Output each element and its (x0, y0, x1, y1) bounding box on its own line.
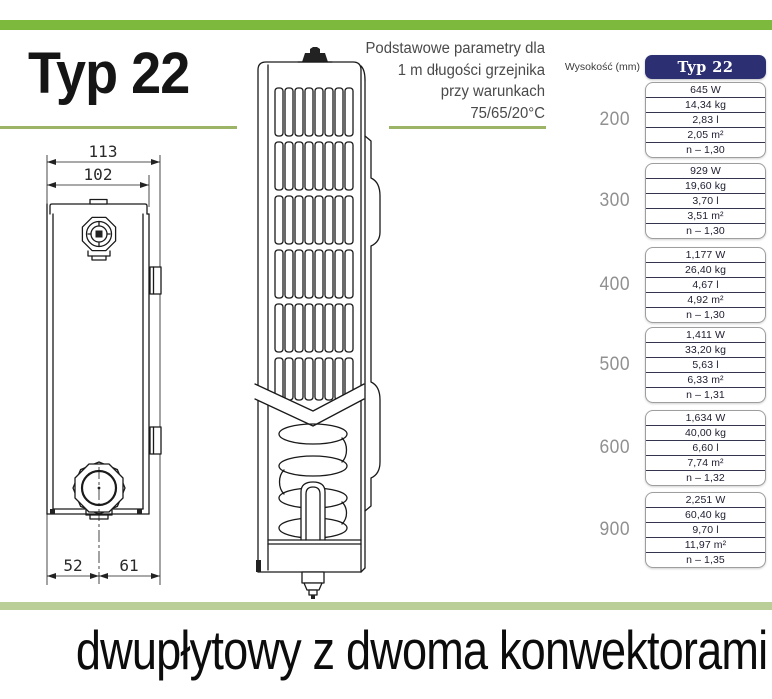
dim-bottom-right-label: 61 (119, 556, 138, 575)
cell-weight: 33,20 kg (646, 342, 765, 357)
cell-volume: 9,70 l (646, 522, 765, 537)
cell-exponent: n – 1,32 (646, 470, 765, 485)
cell-volume: 5,63 l (646, 357, 765, 372)
cell-volume: 4,67 l (646, 277, 765, 292)
wall-bracket-profile (365, 136, 380, 511)
cell-area: 2,05 m² (646, 127, 765, 142)
cell-exponent: n – 1,31 (646, 387, 765, 402)
cell-exponent: n – 1,30 (646, 142, 765, 157)
cell-volume: 3,70 l (646, 193, 765, 208)
height-label-200: 200 (562, 109, 630, 131)
table-group-400: 1,177 W 26,40 kg 4,67 l 4,92 m² n – 1,30 (645, 247, 766, 323)
cell-power: 1,634 W (646, 411, 765, 425)
front-grille (275, 88, 353, 400)
table-group-200: 645 W 14,34 kg 2,83 l 2,05 m² n – 1,30 (645, 82, 766, 158)
cell-area: 4,92 m² (646, 292, 765, 307)
drain-valve-icon (302, 572, 324, 599)
cell-power: 2,251 W (646, 493, 765, 507)
table-heading: Wysokość (mm) (558, 61, 640, 73)
section-break (255, 384, 364, 426)
bottom-green-band (0, 602, 772, 610)
air-vent-icon (298, 47, 332, 62)
cell-weight: 14,34 kg (646, 97, 765, 112)
cell-weight: 26,40 kg (646, 262, 765, 277)
table-group-600: 1,634 W 40,00 kg 6,60 l 7,74 m² n – 1,32 (645, 410, 766, 486)
top-valve-icon (82, 217, 115, 260)
table-group-900: 2,251 W 60,40 kg 9,70 l 11,97 m² n – 1,3… (645, 492, 766, 568)
footer-caption-wrap: dwupłytowy z dwoma konwektorami (0, 618, 772, 682)
spec-sheet: Typ 22 Podstawowe parametry dla 1 m dług… (0, 0, 772, 699)
top-green-bar (0, 20, 772, 30)
cell-weight: 40,00 kg (646, 425, 765, 440)
cell-exponent: n – 1,30 (646, 307, 765, 322)
page-title: Typ 22 (28, 40, 189, 107)
cell-volume: 2,83 l (646, 112, 765, 127)
table-group-300: 929 W 19,60 kg 3,70 l 3,51 m² n – 1,30 (645, 163, 766, 239)
radiator-side-section-drawing: 113 102 (30, 142, 180, 592)
cell-power: 929 W (646, 164, 765, 178)
title-underline (0, 126, 237, 129)
cell-weight: 60,40 kg (646, 507, 765, 522)
cell-exponent: n – 1,30 (646, 223, 765, 238)
cell-weight: 19,60 kg (646, 178, 765, 193)
height-label-500: 500 (562, 354, 630, 376)
cell-power: 645 W (646, 83, 765, 97)
radiator-front-cutaway-drawing (252, 40, 382, 600)
convector-fins (268, 424, 361, 544)
height-label-600: 600 (562, 437, 630, 459)
cell-volume: 6,60 l (646, 440, 765, 455)
type-badge: Typ 22 (645, 55, 766, 79)
dim-inner-width-label: 102 (84, 165, 113, 184)
cell-power: 1,411 W (646, 328, 765, 342)
dim-total-width-label: 113 (89, 142, 118, 161)
height-label-900: 900 (562, 519, 630, 541)
cell-area: 11,97 m² (646, 537, 765, 552)
height-label-300: 300 (562, 190, 630, 212)
footer-caption: dwupłytowy z dwoma konwektorami (76, 618, 767, 682)
dim-bottom-left-label: 52 (63, 556, 82, 575)
wall-bracket-icon (150, 267, 161, 454)
cell-area: 3,51 m² (646, 208, 765, 223)
cell-area: 6,33 m² (646, 372, 765, 387)
note-underline (389, 126, 546, 129)
cell-area: 7,74 m² (646, 455, 765, 470)
cell-power: 1,177 W (646, 248, 765, 262)
height-label-400: 400 (562, 274, 630, 296)
cell-exponent: n – 1,35 (646, 552, 765, 567)
table-group-500: 1,411 W 33,20 kg 5,63 l 6,33 m² n – 1,31 (645, 327, 766, 403)
